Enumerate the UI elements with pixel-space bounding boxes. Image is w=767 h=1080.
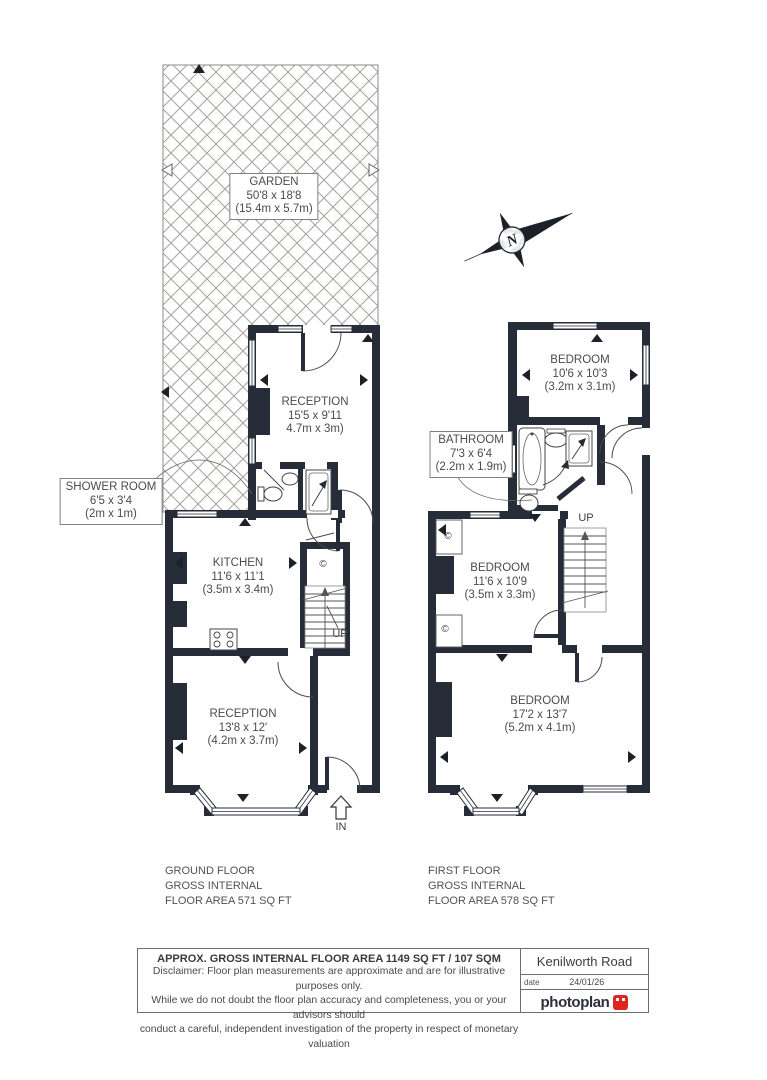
first-floor-walls [428, 322, 650, 816]
property-address: Kenilworth Road [521, 949, 648, 975]
first-floor-summary: FIRST FLOOR GROSS INTERNAL FLOOR AREA 57… [428, 864, 555, 909]
date-row: date 24/01/26 [521, 975, 648, 990]
reception-front-label: RECEPTION 13'8 x 12' (4.2m x 3.7m) [208, 708, 279, 749]
date-label: date [521, 978, 540, 987]
disclaimer-line-3: conduct a careful, independent investiga… [138, 1023, 520, 1052]
photoplan-logo: photoplan [521, 990, 648, 1014]
garden-label: GARDEN 50'8 x 18'8 (15.4m x 5.7m) [229, 173, 318, 220]
kitchen-label: KITCHEN 11'6 x 11'1 (3.5m x 3.4m) [203, 557, 274, 598]
kitchen-hob [210, 629, 237, 650]
photoplan-camera-icon [613, 995, 628, 1010]
bedroom-middle-label: BEDROOM 11'6 x 10'9 (3.5m x 3.3m) [465, 562, 536, 603]
bathroom-label: BATHROOM 7'3 x 6'4 (2.2m x 1.9m) [430, 431, 513, 478]
total-floor-area-title: APPROX. GROSS INTERNAL FLOOR AREA 1149 S… [138, 953, 520, 965]
photoplan-wordmark: photoplan [541, 994, 610, 1011]
floorplan-drawing: N [0, 0, 767, 945]
bathroom-fixtures [519, 428, 592, 511]
up-label-ground: UP [332, 628, 347, 640]
cupboard-symbol-first-2: © [441, 624, 448, 635]
disclaimer-line-2: While we do not doubt the floor plan acc… [138, 994, 520, 1023]
in-label: IN [336, 821, 347, 833]
bedroom-rear-label: BEDROOM 10'6 x 10'3 (3.2m x 3.1m) [545, 354, 616, 395]
floorplan-page: N GARDEN 50'8 x 18'8 (15.4m x 5.7m) RECE… [0, 0, 767, 1080]
disclaimer-line-1: Disclaimer: Floor plan measurements are … [138, 965, 520, 994]
date-value: 24/01/26 [540, 977, 648, 987]
footer-disclaimer-box: APPROX. GROSS INTERNAL FLOOR AREA 1149 S… [137, 948, 521, 1013]
first-floor-stairs [562, 528, 608, 612]
entrance-in-arrow [331, 796, 351, 819]
ground-floor-summary: GROUND FLOOR GROSS INTERNAL FLOOR AREA 5… [165, 864, 292, 909]
bedroom-front-label: BEDROOM 17'2 x 13'7 (5.2m x 4.1m) [505, 695, 576, 736]
footer-branding-box: Kenilworth Road date 24/01/26 photoplan [520, 948, 649, 1013]
shower-room-label: SHOWER ROOM 6'5 x 3'4 (2m x 1m) [60, 478, 163, 525]
first-floor-plan [428, 322, 650, 816]
compass-rose: N [452, 186, 584, 289]
cupboard-symbol-ground: © [319, 559, 326, 570]
up-label-first: UP [578, 512, 593, 524]
cupboard-symbol-first-1: © [444, 531, 451, 542]
reception-rear-label: RECEPTION 15'5 x 9'11 4.7m x 3m) [281, 396, 348, 437]
